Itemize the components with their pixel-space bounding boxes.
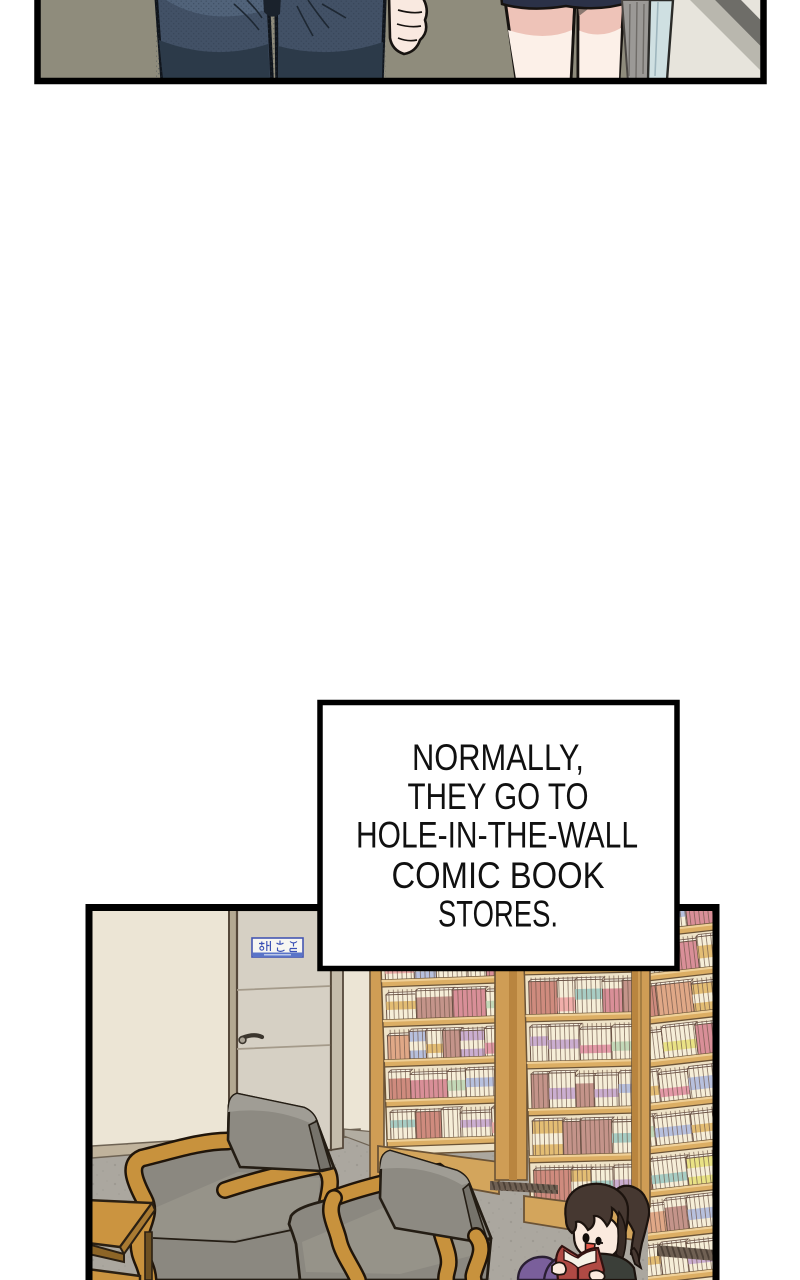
svg-text:COMIC BOOK: COMIC BOOK — [392, 855, 605, 896]
svg-text:THEY GO TO: THEY GO TO — [408, 776, 589, 817]
svg-text:STORES.: STORES. — [438, 894, 558, 935]
svg-text:HOLE-IN-THE-WALL: HOLE-IN-THE-WALL — [356, 815, 638, 856]
svg-text:NORMALLY,: NORMALLY, — [412, 737, 584, 778]
